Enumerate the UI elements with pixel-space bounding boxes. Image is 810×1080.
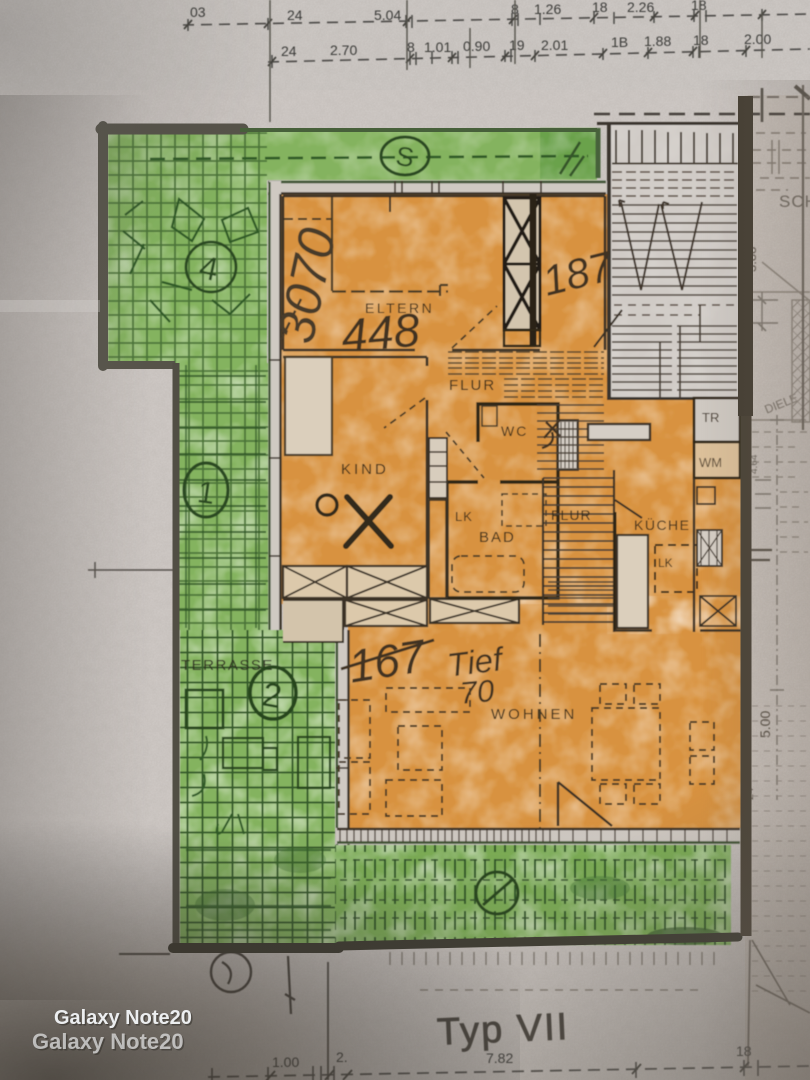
- svg-text:19: 19: [509, 37, 525, 53]
- svg-text:1B: 1B: [611, 34, 628, 50]
- svg-text:0.90: 0.90: [463, 38, 490, 54]
- svg-text:448: 448: [339, 303, 422, 363]
- svg-text:Galaxy Note20: Galaxy Note20: [32, 1029, 184, 1054]
- svg-text:Galaxy Note20: Galaxy Note20: [54, 1007, 192, 1029]
- svg-text:WC: WC: [501, 423, 528, 439]
- svg-text:LK: LK: [658, 556, 673, 570]
- svg-text:70: 70: [458, 673, 495, 711]
- svg-text:FLUR: FLUR: [449, 377, 496, 394]
- svg-text:1.26: 1.26: [534, 1, 561, 17]
- svg-text:18: 18: [691, 0, 707, 13]
- svg-text:KÜCHE: KÜCHE: [634, 516, 691, 533]
- svg-text:8: 8: [407, 39, 415, 55]
- svg-text:24: 24: [287, 7, 303, 23]
- svg-text:2.70: 2.70: [330, 42, 357, 58]
- svg-text:18: 18: [592, 0, 608, 15]
- svg-text:1.01: 1.01: [424, 39, 451, 55]
- svg-text:KIND: KIND: [341, 461, 389, 478]
- svg-text:18: 18: [693, 32, 709, 48]
- svg-text:24: 24: [281, 43, 297, 59]
- svg-text:5.04: 5.04: [374, 7, 401, 23]
- svg-text:1.88: 1.88: [644, 33, 671, 49]
- svg-text:LK: LK: [455, 509, 473, 524]
- svg-text:2.26: 2.26: [627, 0, 654, 15]
- svg-text:2.01: 2.01: [541, 37, 568, 53]
- svg-text:BAD: BAD: [479, 529, 516, 546]
- svg-text:WOHNEN: WOHNEN: [491, 706, 577, 723]
- svg-text:FLUR: FLUR: [551, 507, 592, 523]
- svg-text:2.00: 2.00: [744, 31, 771, 47]
